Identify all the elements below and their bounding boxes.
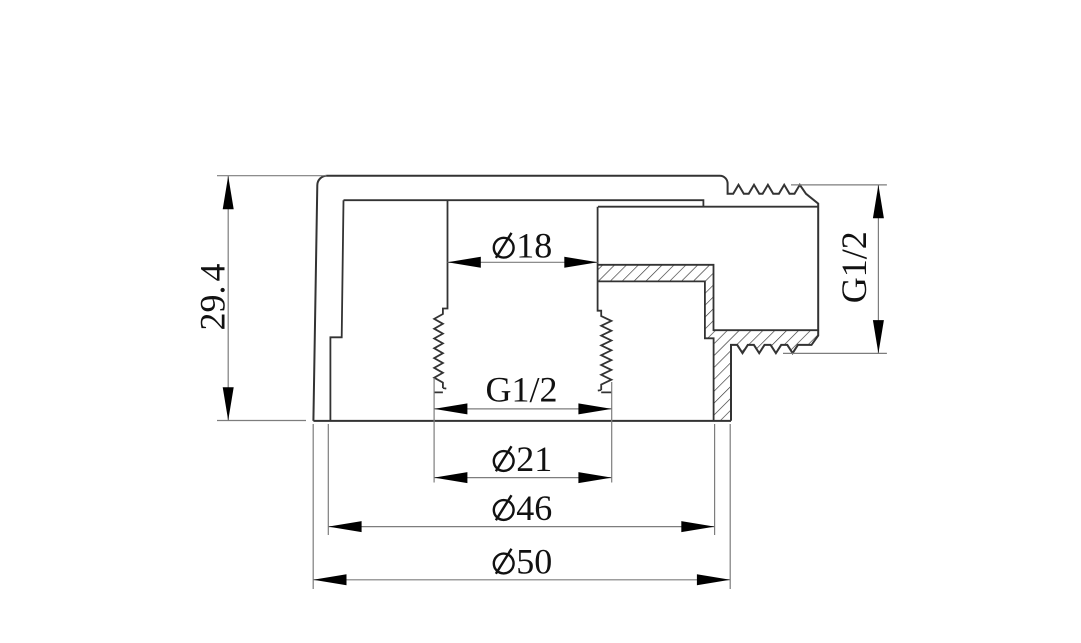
- svg-text:50: 50: [516, 542, 552, 582]
- svg-text:46: 46: [516, 488, 552, 528]
- svg-text:G1/2: G1/2: [486, 369, 558, 409]
- svg-text:G1/2: G1/2: [834, 231, 874, 303]
- svg-text:29.4: 29.4: [193, 264, 233, 331]
- svg-text:21: 21: [516, 439, 552, 479]
- svg-text:18: 18: [516, 226, 552, 266]
